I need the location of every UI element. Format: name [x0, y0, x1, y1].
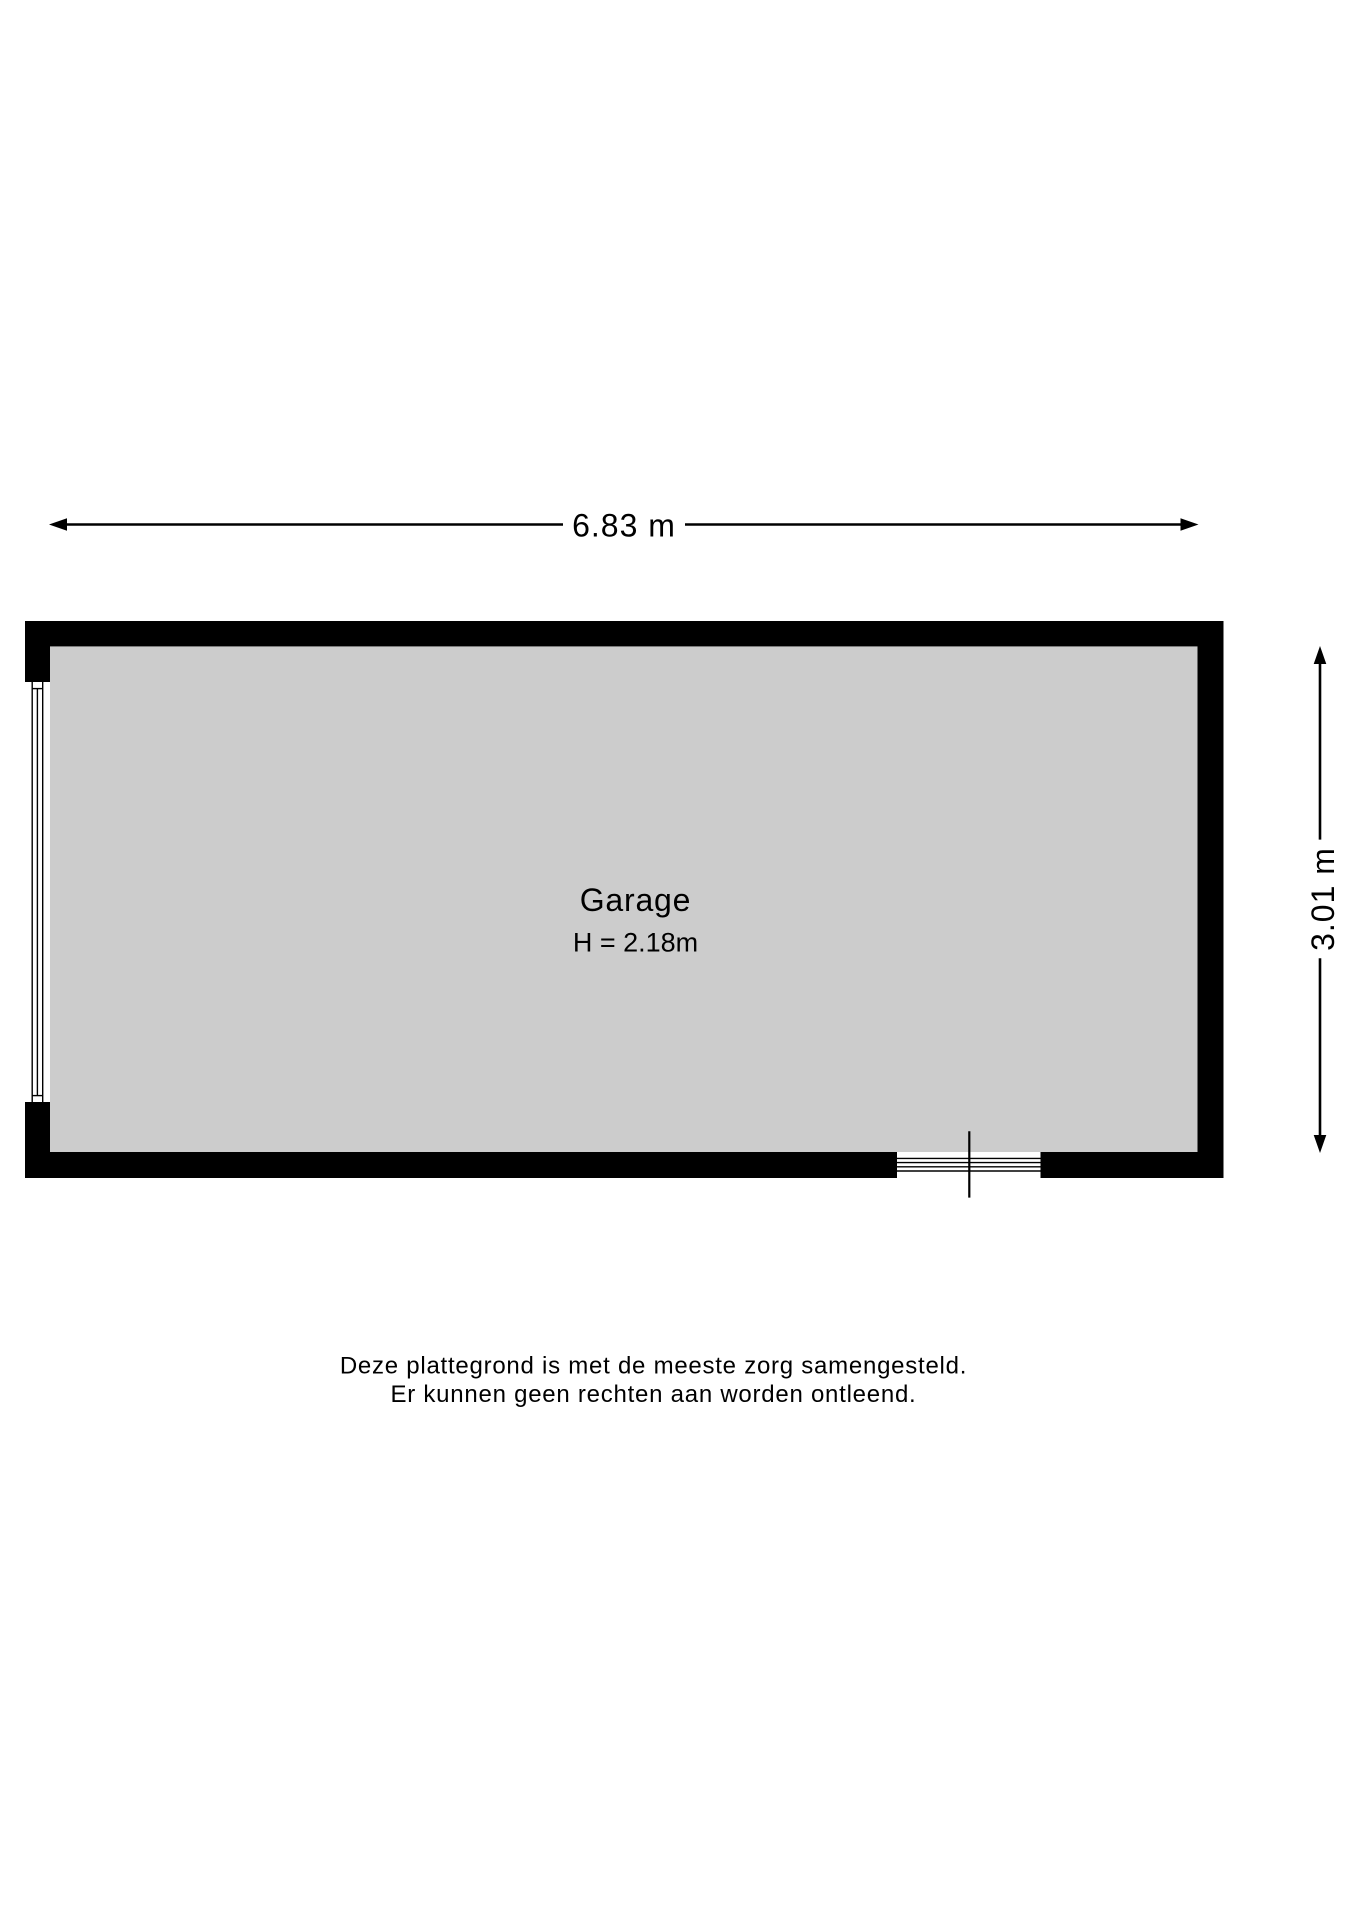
- svg-text:Er kunnen geen rechten aan wor: Er kunnen geen rechten aan worden ontlee…: [391, 1381, 917, 1408]
- svg-text:H = 2.18m: H = 2.18m: [573, 927, 698, 957]
- svg-text:3.01 m: 3.01 m: [1305, 847, 1341, 951]
- svg-text:6.83 m: 6.83 m: [572, 508, 676, 544]
- svg-text:Garage: Garage: [580, 882, 692, 918]
- svg-text:Deze plattegrond is met de mee: Deze plattegrond is met de meeste zorg s…: [340, 1352, 967, 1379]
